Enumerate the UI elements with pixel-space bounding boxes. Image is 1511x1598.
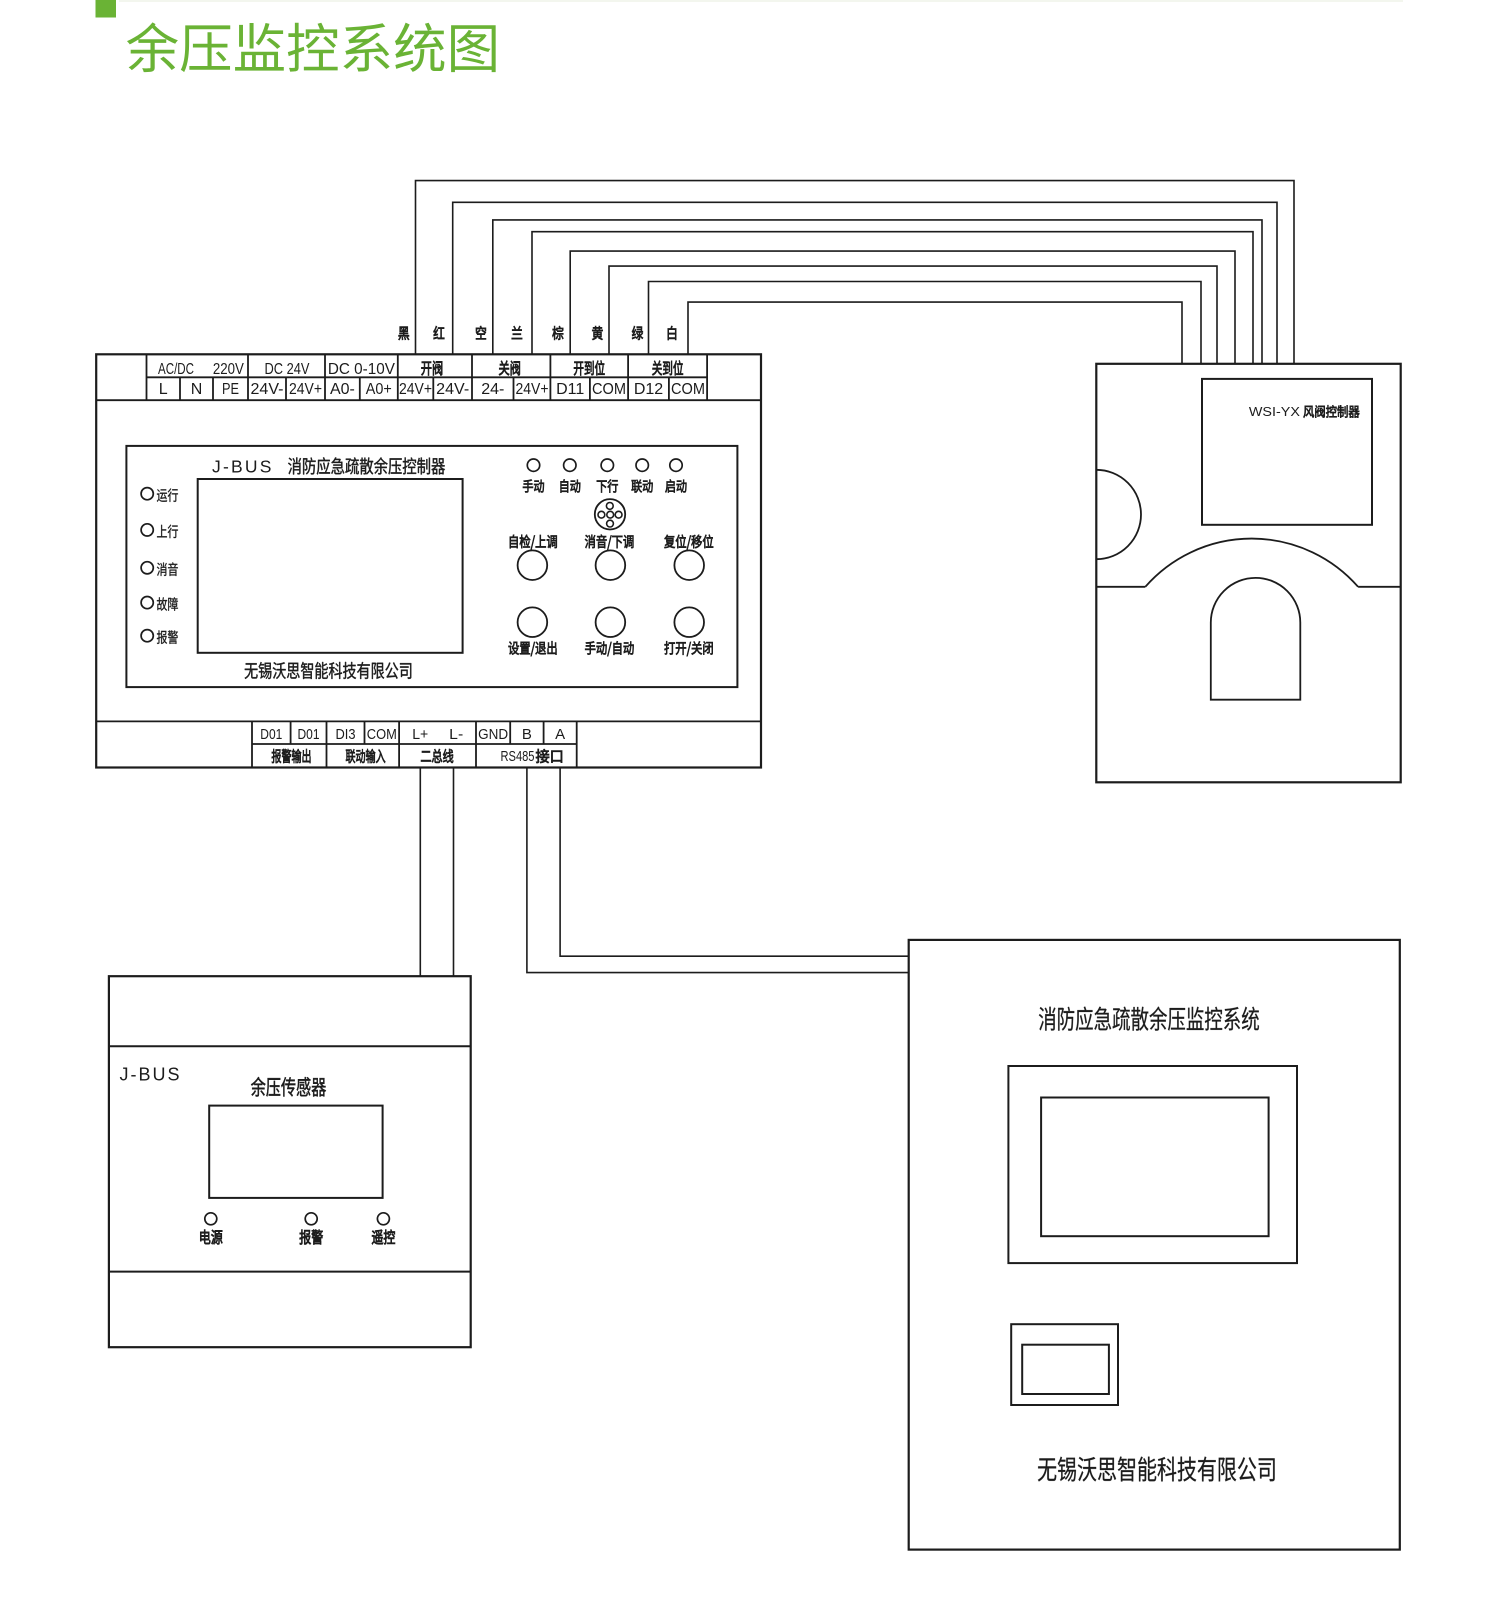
svg-text:L: L bbox=[159, 381, 168, 398]
svg-text:24V-: 24V- bbox=[436, 381, 469, 398]
svg-text:D01: D01 bbox=[298, 726, 320, 743]
svg-text:N: N bbox=[191, 381, 203, 398]
svg-text:COM: COM bbox=[592, 381, 626, 398]
svg-text:24V+: 24V+ bbox=[289, 381, 322, 398]
svg-text:24V-: 24V- bbox=[251, 381, 284, 398]
svg-text:D01: D01 bbox=[260, 726, 282, 743]
svg-text:J-BUS: J-BUS bbox=[119, 1065, 181, 1085]
svg-text:PE: PE bbox=[222, 381, 239, 398]
svg-text:L-: L- bbox=[449, 726, 463, 743]
svg-text:L+: L+ bbox=[412, 726, 428, 743]
svg-text:A0-: A0- bbox=[330, 381, 355, 398]
svg-text:DC 24V: DC 24V bbox=[265, 361, 310, 378]
svg-text:D11: D11 bbox=[556, 381, 584, 398]
svg-text:AC/DC: AC/DC bbox=[158, 361, 194, 378]
svg-text:COM: COM bbox=[367, 726, 397, 743]
svg-text:DI3: DI3 bbox=[336, 726, 356, 743]
svg-text:B: B bbox=[522, 726, 532, 743]
svg-text:DC 0-10V: DC 0-10V bbox=[328, 361, 395, 378]
svg-text:J-BUS: J-BUS bbox=[212, 457, 274, 477]
svg-text:A0+: A0+ bbox=[366, 381, 392, 398]
svg-text:24V+: 24V+ bbox=[516, 381, 549, 398]
svg-text:24V+: 24V+ bbox=[399, 381, 432, 398]
svg-text:A: A bbox=[555, 726, 565, 743]
svg-text:220V: 220V bbox=[213, 361, 244, 378]
svg-text:COM: COM bbox=[671, 381, 705, 398]
svg-text:WSI-YX: WSI-YX bbox=[1249, 404, 1300, 419]
svg-text:GND: GND bbox=[478, 726, 508, 743]
svg-text:24-: 24- bbox=[481, 381, 504, 398]
svg-text:RS485: RS485 bbox=[501, 748, 535, 765]
svg-text:D12: D12 bbox=[634, 381, 663, 398]
